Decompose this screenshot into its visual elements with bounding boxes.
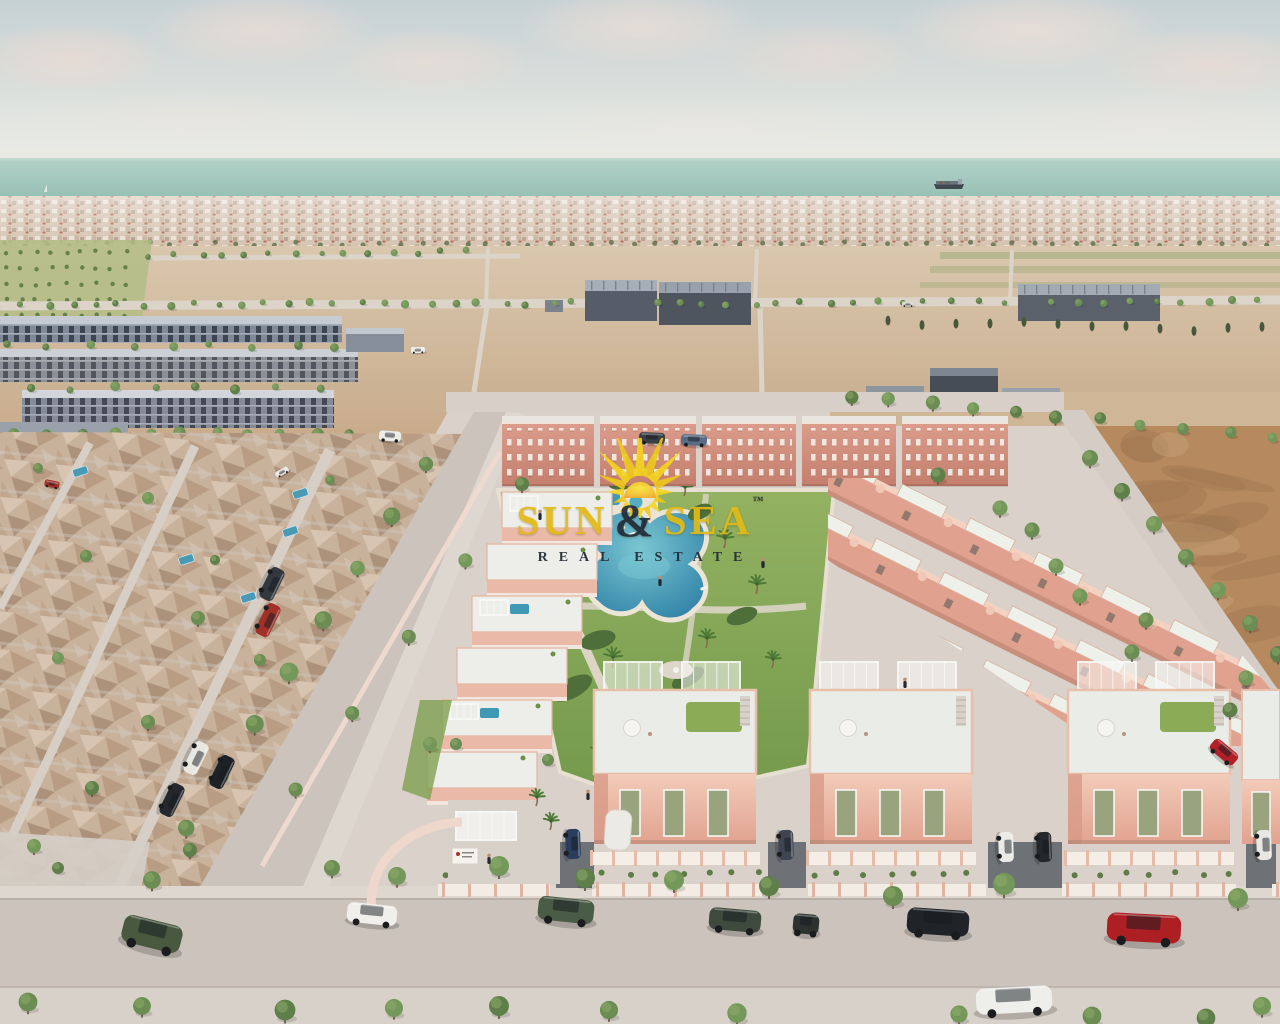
parked-car [774, 829, 794, 863]
covered-car [604, 809, 633, 851]
parked-car [791, 913, 822, 940]
parked-car [638, 432, 667, 447]
parked-car [680, 434, 709, 449]
aerial-development-render: SUN&SEA™ REAL ESTATE [0, 0, 1280, 1024]
parked-car [994, 831, 1014, 865]
distant-town [0, 196, 1280, 248]
scene-svg [0, 0, 1280, 1024]
parked-car [561, 828, 581, 862]
parked-car [1032, 831, 1052, 865]
foreground-villas [556, 662, 1280, 888]
parked-car [902, 302, 916, 308]
entrance-sign [452, 848, 478, 864]
parked-car [411, 347, 427, 355]
parked-car [1252, 829, 1272, 863]
